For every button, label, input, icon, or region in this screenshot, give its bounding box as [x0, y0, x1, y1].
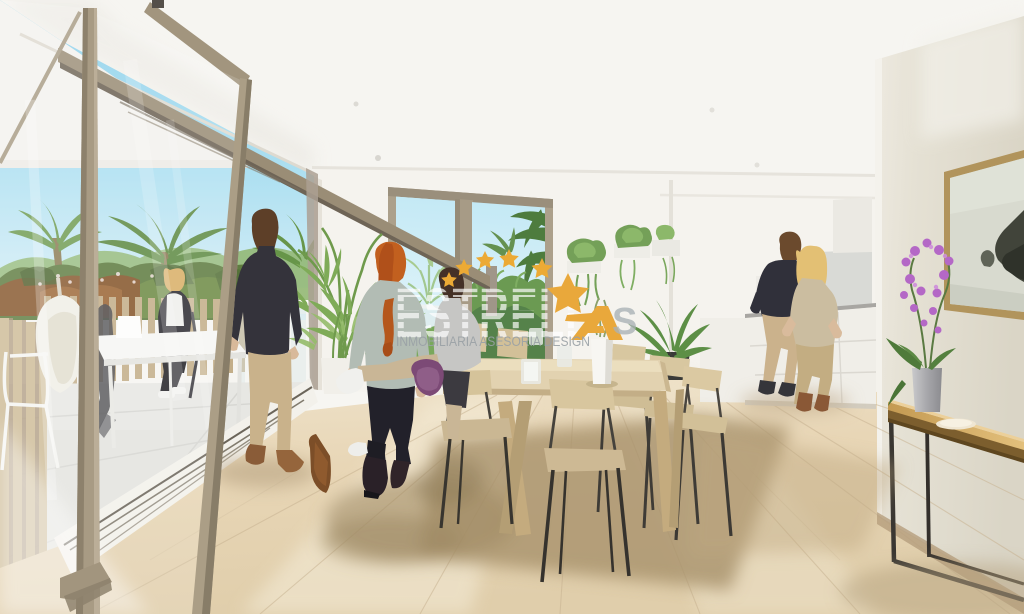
svg-text:S: S [612, 301, 637, 343]
svg-text:INMOBILIARIA ASESORIA DESIGN: INMOBILIARIA ASESORIA DESIGN [396, 333, 590, 349]
